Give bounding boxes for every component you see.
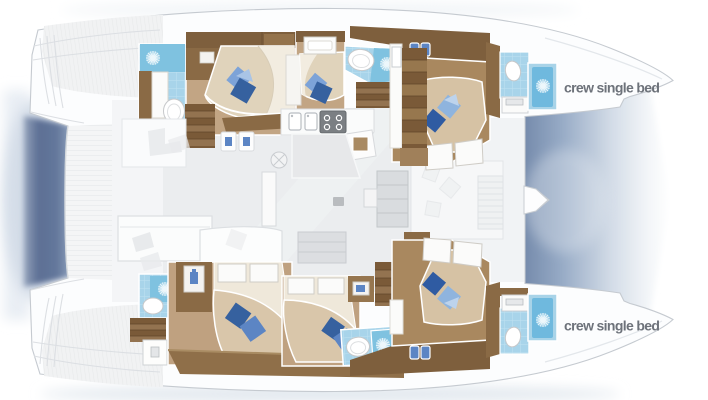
svg-text:crew single bed: crew single bed xyxy=(564,80,659,96)
svg-text:crew single bed: crew single bed xyxy=(564,318,659,334)
